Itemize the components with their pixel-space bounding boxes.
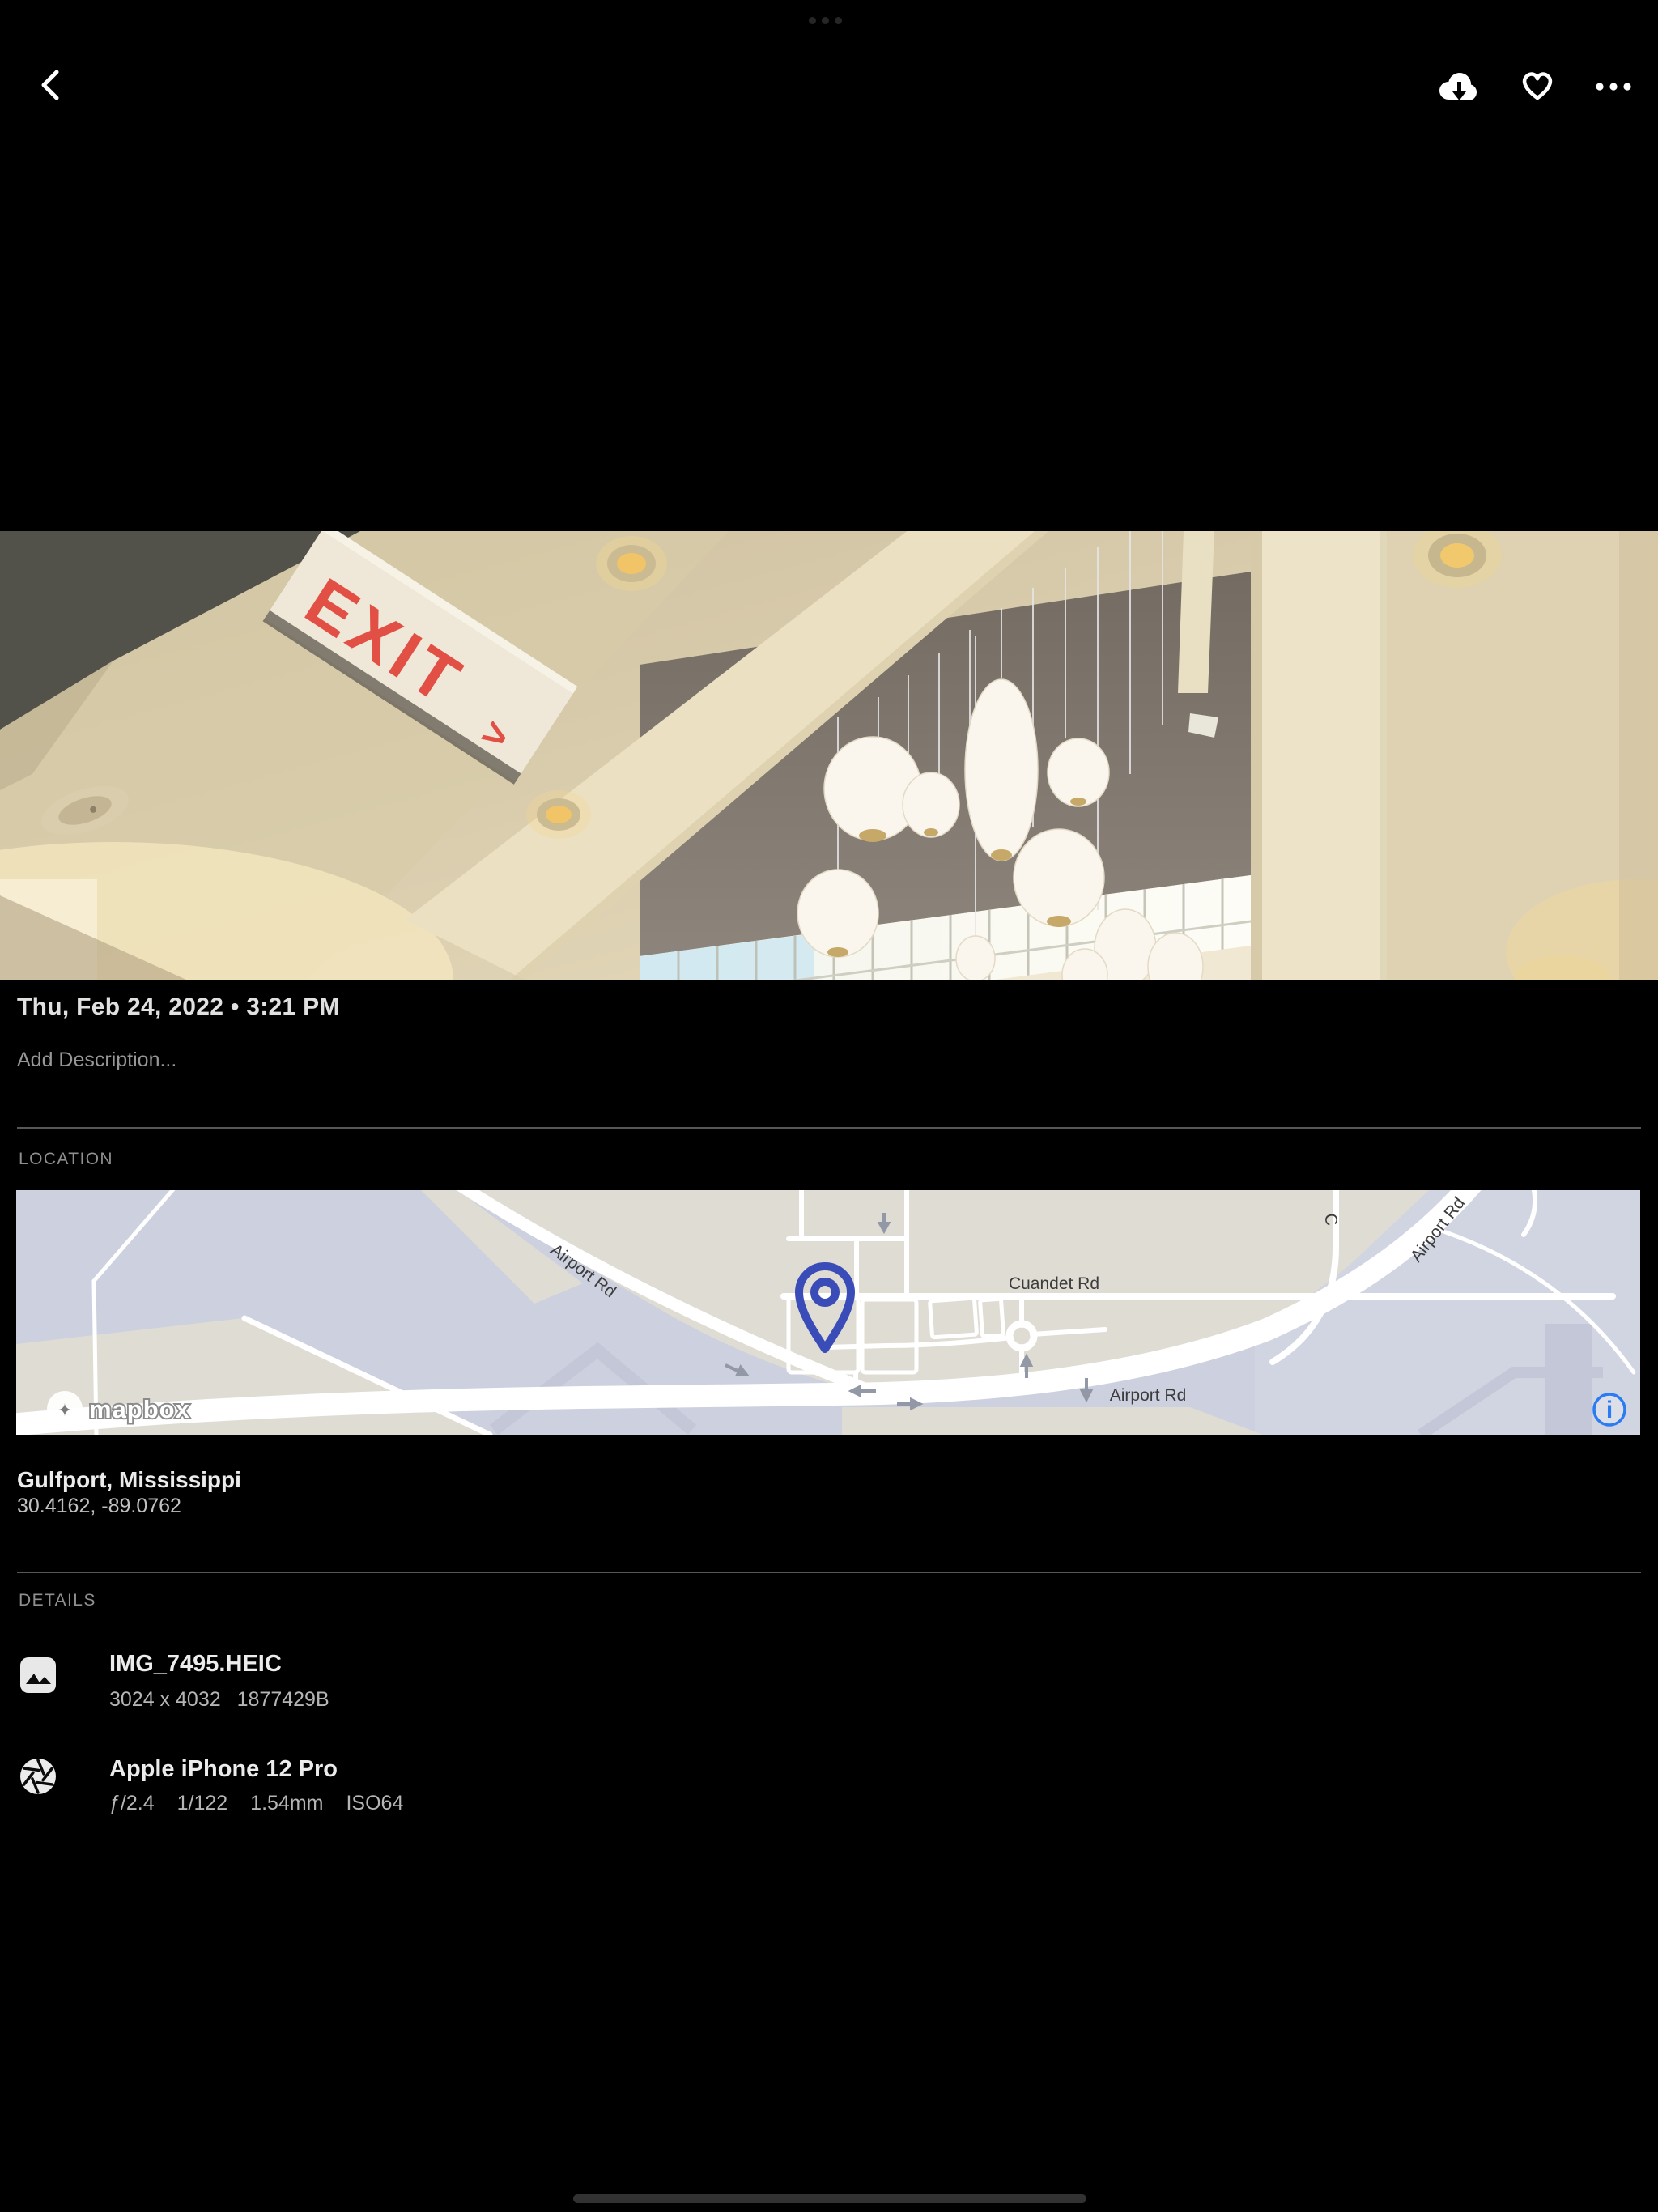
file-dimensions: 3024 x 4032: [109, 1688, 221, 1712]
divider: [17, 1127, 1641, 1129]
location-place: Gulfport, Mississippi: [17, 1467, 241, 1493]
file-name: IMG_7495.HEIC: [109, 1651, 282, 1678]
description-input[interactable]: Add Description...: [17, 1049, 176, 1072]
mapbox-wordmark: mapbox: [89, 1395, 190, 1423]
file-row-icon: [19, 1657, 57, 1698]
mapbox-logo[interactable]: ✦ mapbox: [47, 1391, 190, 1427]
camera-row-icon: [19, 1757, 57, 1800]
back-button[interactable]: [36, 68, 65, 106]
aperture-icon: [19, 1757, 57, 1796]
exif-iso: ISO64: [346, 1792, 403, 1815]
location-map[interactable]: Airport Rd Cuandet Rd Airport Rd C Airpo…: [16, 1190, 1640, 1435]
chevron-left-icon: [36, 68, 65, 102]
exif-shutter: 1/122: [177, 1792, 228, 1815]
photo-datetime: Thu, Feb 24, 2022 • 3:21 PM: [17, 993, 340, 1021]
camera-model: Apple iPhone 12 Pro: [109, 1756, 338, 1783]
home-indicator[interactable]: [573, 2194, 1086, 2203]
info-icon: i: [1606, 1397, 1613, 1423]
ellipsis-icon: [1595, 82, 1632, 91]
system-drag-handle-icon[interactable]: [809, 17, 842, 24]
camera-exif: ƒ/2.4 1/122 1.54mm ISO64: [109, 1792, 426, 1815]
download-button[interactable]: [1435, 71, 1477, 108]
cloud-download-icon: [1435, 71, 1477, 104]
location-coordinates: 30.4162, -89.0762: [17, 1495, 181, 1518]
details-section-label: DETAILS: [19, 1591, 96, 1610]
exif-focal-length: 1.54mm: [250, 1792, 323, 1815]
photo-preview[interactable]: EXIT >: [0, 531, 1658, 980]
divider: [17, 1572, 1641, 1573]
map-canvas: Airport Rd Cuandet Rd Airport Rd C Airpo…: [16, 1190, 1640, 1435]
favorite-button[interactable]: [1520, 70, 1554, 107]
location-section-label: LOCATION: [19, 1150, 113, 1169]
more-options-button[interactable]: [1595, 81, 1632, 96]
image-icon: [19, 1657, 57, 1694]
mapbox-pin-glyph: ✦: [57, 1400, 72, 1420]
map-info-button[interactable]: i: [1594, 1394, 1625, 1425]
map-road-label: Airport Rd: [1110, 1386, 1187, 1405]
photo-detail-screen: EXIT > Thu, Feb 24, 2022 • 3:21 PM Add D…: [0, 0, 1658, 2212]
file-size: 1877429B: [237, 1688, 329, 1712]
file-meta: 3024 x 4032 1877429B: [109, 1688, 346, 1712]
map-road-label: Cuandet Rd: [1009, 1274, 1099, 1293]
exif-aperture: ƒ/2.4: [109, 1792, 155, 1815]
photo-image: EXIT >: [0, 531, 1658, 980]
heart-icon: [1520, 70, 1554, 103]
